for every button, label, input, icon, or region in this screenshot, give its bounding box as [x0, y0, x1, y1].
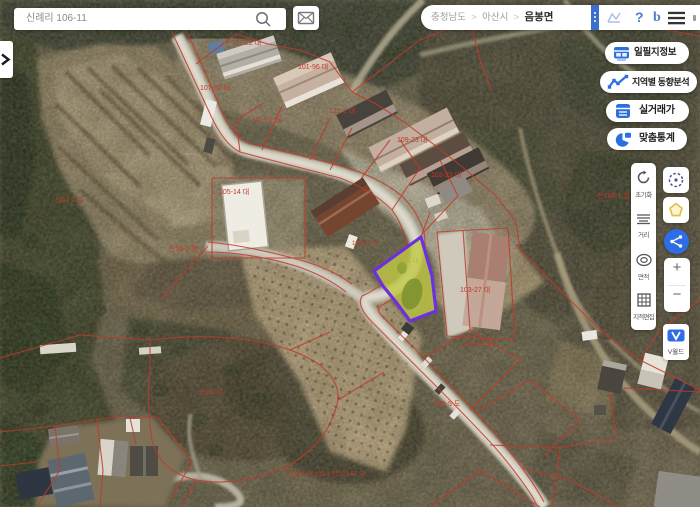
svg-text:103-27 대: 103-27 대: [460, 286, 490, 294]
svg-text:111-22 대: 111-22 대: [232, 39, 261, 47]
svg-text:산199 답: 산199 답: [200, 388, 223, 396]
svg-text:103-23 대: 103-23 대: [431, 171, 461, 179]
svg-text:산56-2 임: 산56-2 임: [169, 244, 198, 253]
svg-text:105-14 대: 105-14 대: [219, 188, 249, 196]
svg-text:121-1 대: 121-1 대: [329, 107, 355, 115]
svg-text:산199-5 임 203-1 임 201-57 답: 산199-5 임 203-1 임 201-57 답: [285, 470, 365, 478]
svg-text:111-31 대: 111-31 대: [252, 116, 281, 124]
svg-text:산185-1 임: 산185-1 임: [597, 191, 630, 200]
svg-text:109-5 도: 109-5 도: [434, 400, 461, 408]
svg-text:106-10 전: 106-10 전: [352, 239, 378, 247]
svg-text:104-34 대: 104-34 대: [462, 341, 492, 349]
svg-text:107-36 대: 107-36 대: [200, 84, 230, 92]
svg-text:101-96 대: 101-96 대: [298, 63, 328, 71]
svg-text:109-23 대: 109-23 대: [397, 136, 427, 144]
svg-text:산57-1 임: 산57-1 임: [55, 195, 84, 204]
